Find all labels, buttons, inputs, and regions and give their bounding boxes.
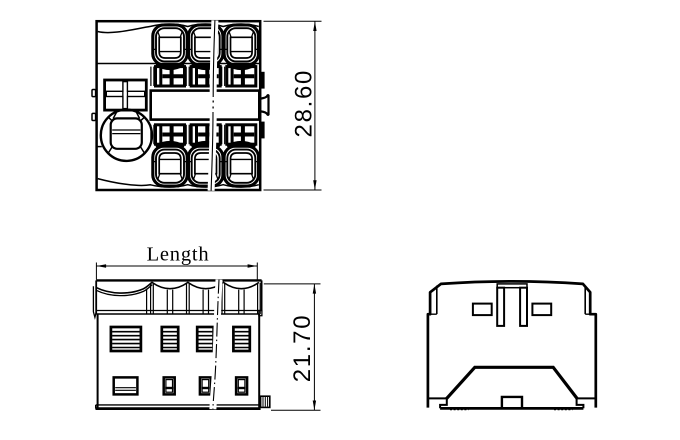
svg-text:28.60: 28.60: [290, 69, 317, 138]
svg-text:21.70: 21.70: [289, 314, 316, 383]
svg-text:Length: Length: [147, 243, 210, 265]
